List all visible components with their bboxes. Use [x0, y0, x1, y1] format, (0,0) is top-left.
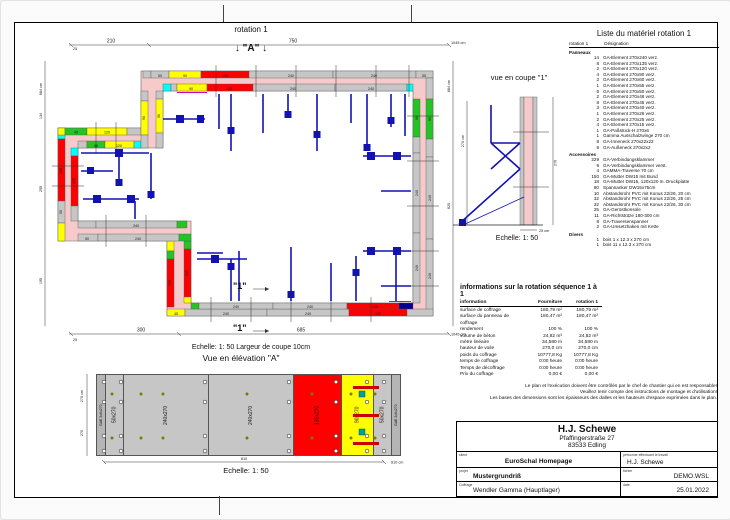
- elevation-joint-circles: [102, 380, 386, 453]
- drawing-page: .cg{fill:#c6c6c6;stroke:#555;stroke-widt…: [0, 0, 730, 520]
- elevation-overlay-svg: [1, 1, 730, 519]
- elevation-tie-dots: [111, 393, 377, 440]
